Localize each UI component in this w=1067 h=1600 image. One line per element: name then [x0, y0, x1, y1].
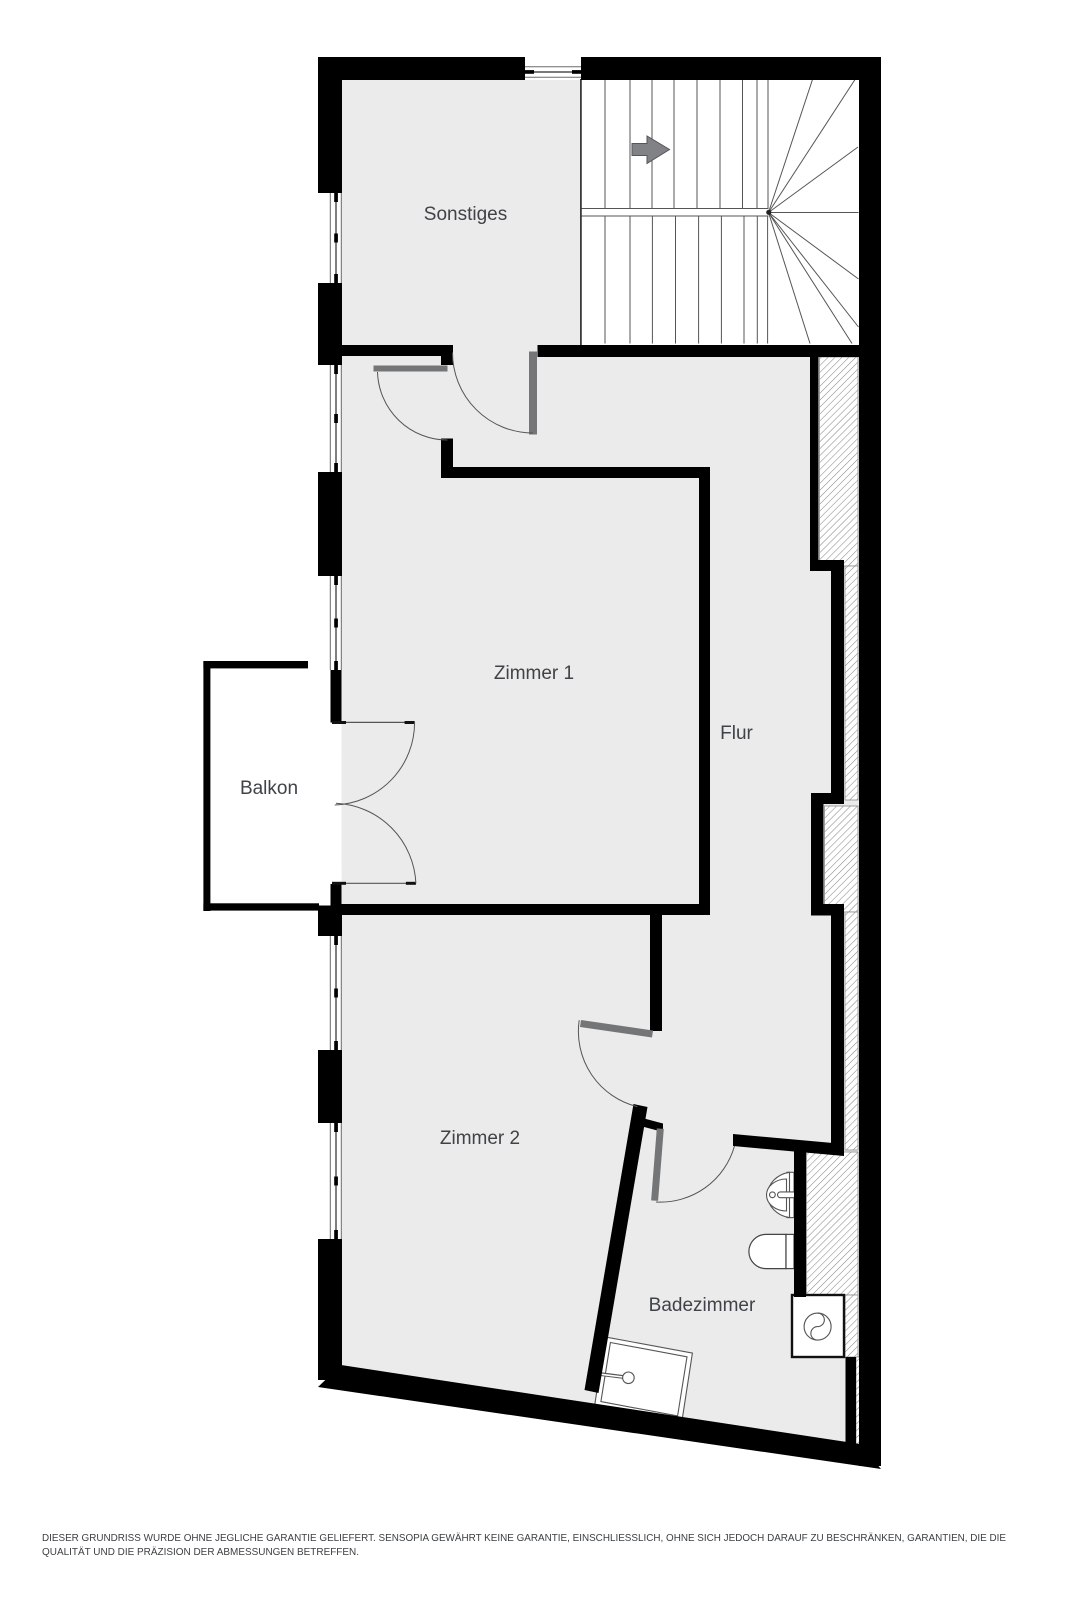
- svg-text:DIESER GRUNDRISS WURDE OHNE JE: DIESER GRUNDRISS WURDE OHNE JEGLICHE GAR…: [42, 1532, 1006, 1544]
- svg-text:Balkon: Balkon: [240, 778, 298, 799]
- svg-text:QUALITÄT UND DIE PRÄZISION DER: QUALITÄT UND DIE PRÄZISION DER ABMESSUNG…: [42, 1546, 359, 1558]
- svg-text:Badezimmer: Badezimmer: [649, 1295, 756, 1316]
- svg-text:Flur: Flur: [720, 723, 753, 744]
- svg-text:Sonstiges: Sonstiges: [424, 204, 507, 225]
- svg-text:Zimmer 1: Zimmer 1: [494, 663, 574, 684]
- svg-text:Zimmer 2: Zimmer 2: [440, 1128, 520, 1149]
